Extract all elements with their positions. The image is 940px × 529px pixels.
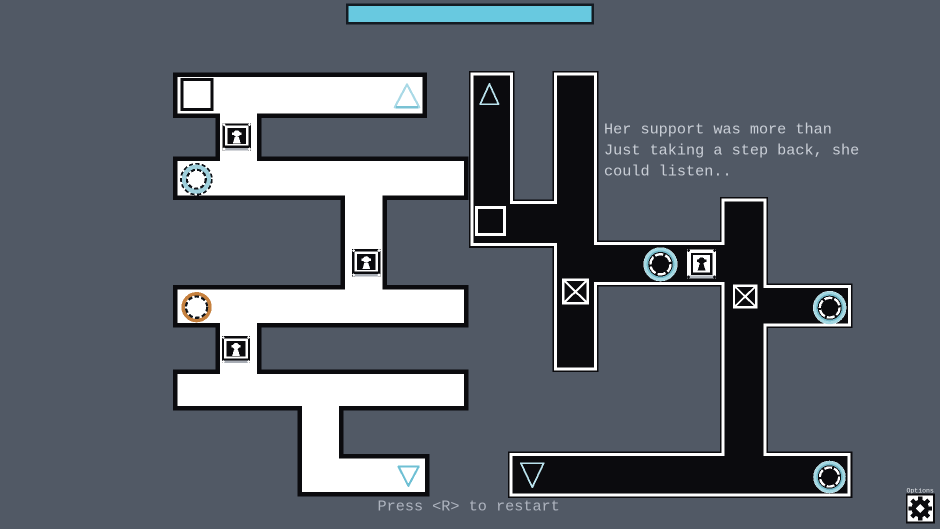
- svg-text:Options: Options: [907, 488, 934, 495]
- svg-text:could listen..: could listen..: [604, 163, 732, 181]
- svg-text:Just taking a step back, she: Just taking a step back, she: [604, 142, 859, 160]
- svg-text:Press <R> to restart: Press <R> to restart: [378, 497, 560, 515]
- svg-text:Her support was more than: Her support was more than: [604, 121, 832, 139]
